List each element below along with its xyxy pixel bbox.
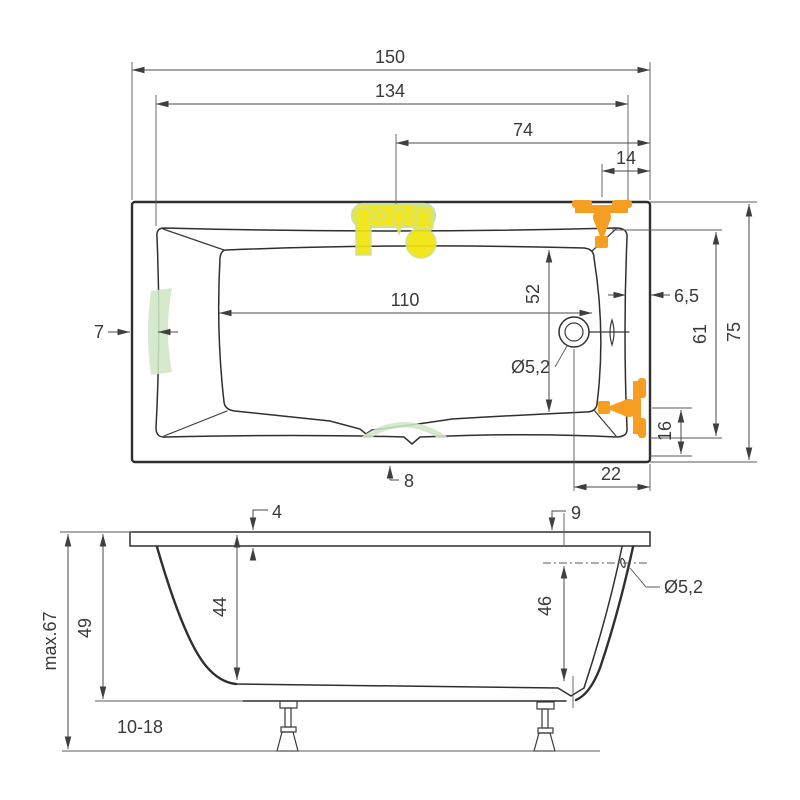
corner-slope-line (164, 411, 227, 436)
dim-label: 150 (375, 47, 405, 67)
dim-label: 49 (75, 618, 95, 638)
side-mounted-faucet-icon (598, 378, 646, 438)
deck-rim-section (130, 532, 650, 546)
dim-label: 44 (210, 597, 230, 617)
mixer-cartridge (375, 210, 385, 220)
tub-outline-top (132, 202, 650, 462)
grab-handle-icon (360, 422, 449, 438)
dim-label: 7 (94, 322, 104, 342)
dim-label: 8 (404, 471, 414, 491)
dim-label: 4 (272, 502, 282, 522)
dim-label: Ø5,2 (511, 357, 550, 377)
basin-floor-line (236, 684, 584, 696)
dim-mixer-to-edge-74: 74 (396, 120, 650, 204)
dim-overflow-diameter: Ø5,2 (630, 568, 703, 597)
dim-label: 10-18 (117, 717, 163, 737)
drain-outlet-icon (559, 317, 589, 347)
side-view: max.67 49 44 4 9 46 (40, 502, 703, 751)
dim-label: 9 (571, 503, 581, 523)
dim-label: max.67 (40, 611, 60, 670)
dim-rim-width-right-6-5: 6,5 (608, 286, 699, 306)
dim-basin-width-52: 52 (523, 250, 549, 412)
dim-label: 16 (655, 421, 675, 441)
mixer-base (406, 228, 436, 258)
foot-end-wall-outer (576, 547, 633, 700)
top-view: 150 134 74 14 7 110 5 (94, 47, 757, 491)
dim-faucet-to-edge-14: 14 (602, 148, 650, 197)
adjustable-foot-left (277, 701, 298, 751)
bathtub-drawing-canvas: 150 134 74 14 7 110 5 (0, 0, 800, 800)
corner-slope-line (163, 229, 224, 250)
dim-label: 61 (690, 324, 710, 344)
dim-label: 134 (375, 81, 405, 101)
dim-rim-thickness-head-4: 4 (253, 502, 282, 560)
mixer-handle-left (356, 209, 371, 255)
dim-label: 46 (535, 596, 555, 616)
technical-drawing-page: 150 134 74 14 7 110 5 (0, 0, 800, 800)
dim-grip-offset-8: 8 (390, 466, 414, 491)
dim-rim-thickness-foot-9: 9 (552, 503, 581, 545)
dim-label: Ø5,2 (664, 577, 703, 597)
dim-label: 52 (523, 284, 543, 304)
rim-mounted-faucet-icon (572, 200, 632, 248)
dim-label: 14 (616, 148, 636, 168)
adjustable-foot-right (534, 702, 555, 751)
dim-feet-range-10-18: 10-18 (117, 717, 163, 737)
dim-inner-depth-44: 44 (210, 535, 237, 680)
tub-outer-rim (132, 202, 650, 462)
dim-label: 75 (724, 322, 744, 342)
basin-floor-outline (219, 246, 601, 434)
mixer-spout (393, 209, 406, 235)
overflow-slot-icon (589, 320, 629, 345)
dim-drain-diameter: Ø5,2 (511, 346, 567, 377)
dim-label: 110 (391, 290, 420, 310)
dim-side-faucet-16: 16 (650, 408, 692, 456)
dim-label: 74 (513, 120, 533, 140)
dim-label: 22 (601, 464, 621, 484)
dim-label: 6,5 (674, 286, 699, 306)
dim-overall-length-150: 150 (132, 47, 650, 200)
tub-outline-side (130, 532, 650, 708)
